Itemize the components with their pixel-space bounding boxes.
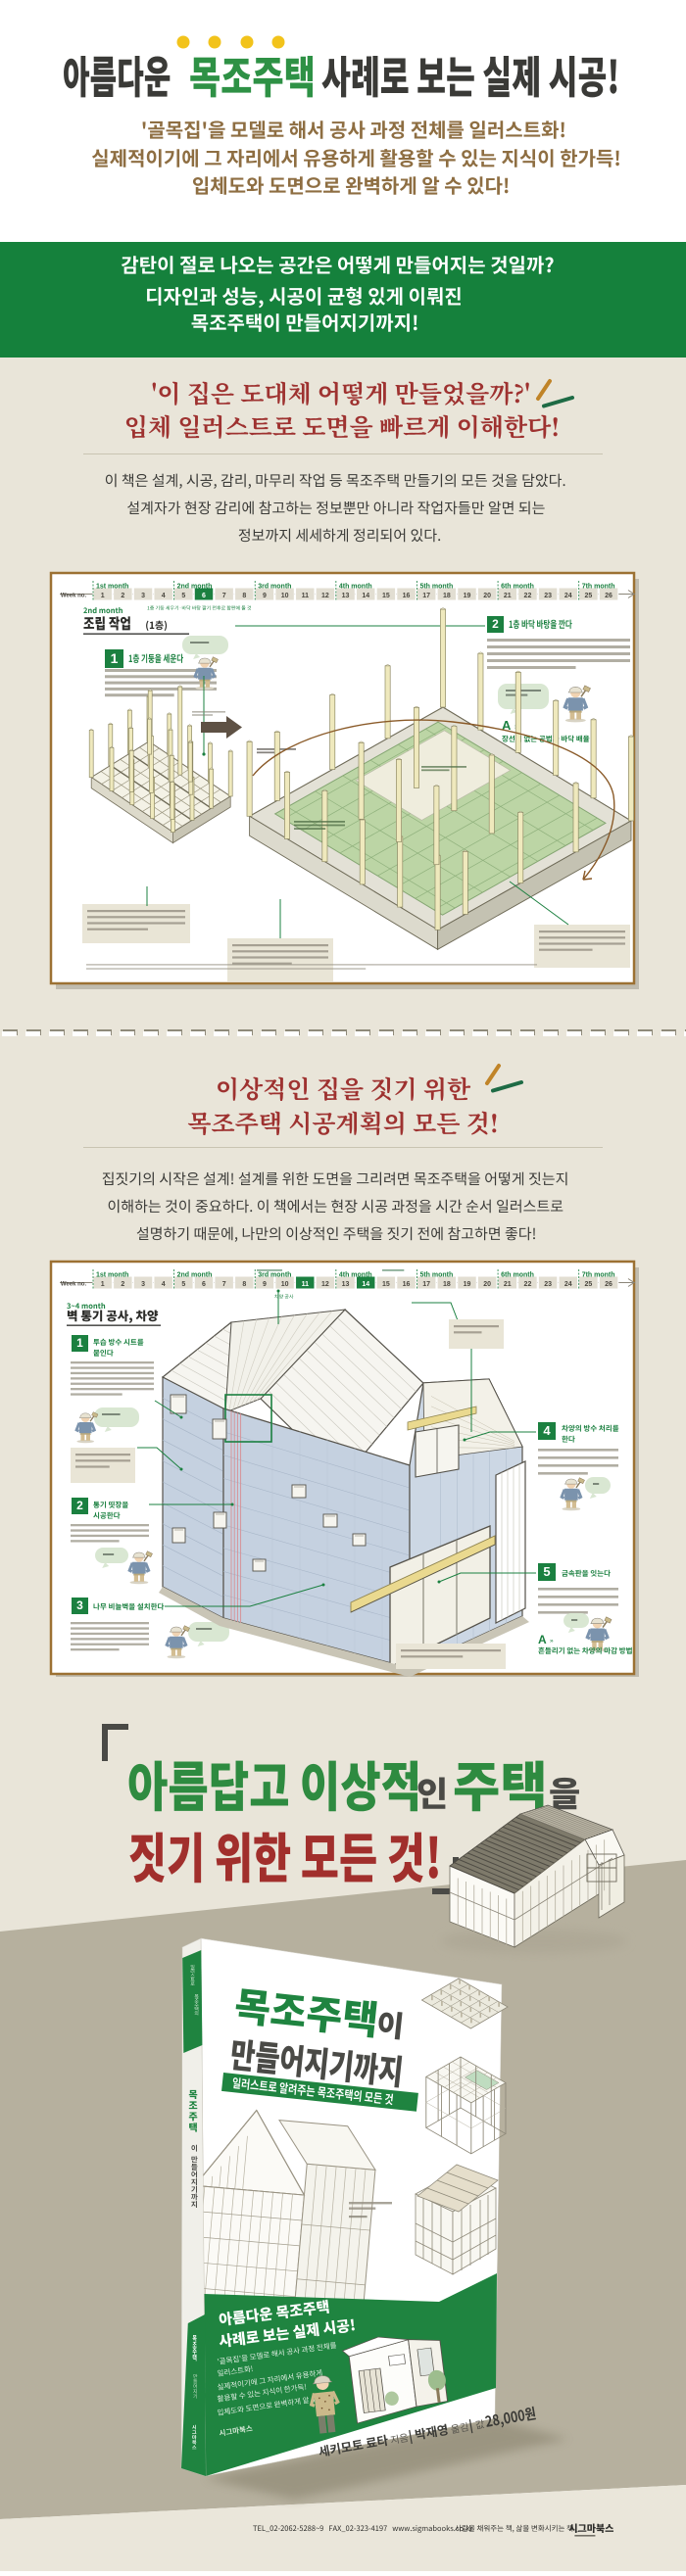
svg-text:1: 1 <box>76 1336 83 1350</box>
svg-text:2nd month: 2nd month <box>177 584 213 591</box>
svg-text:2nd month: 2nd month <box>177 1272 213 1279</box>
svg-text:3rd month: 3rd month <box>258 584 291 591</box>
svg-text:14: 14 <box>362 1281 369 1288</box>
svg-text:Week no.: Week no. <box>61 594 87 599</box>
svg-text:17: 17 <box>422 1281 430 1288</box>
svg-text:11: 11 <box>302 1281 310 1288</box>
svg-text:21: 21 <box>504 593 512 599</box>
svg-text:20: 20 <box>483 593 491 599</box>
svg-text:7: 7 <box>222 593 226 599</box>
svg-text:20: 20 <box>483 1281 491 1288</box>
svg-text:15: 15 <box>382 593 390 599</box>
svg-text:6: 6 <box>202 1281 206 1288</box>
svg-text:13: 13 <box>342 1281 350 1288</box>
svg-text:18: 18 <box>443 593 451 599</box>
svg-text:26: 26 <box>605 593 612 599</box>
svg-text:5th month: 5th month <box>419 1272 453 1279</box>
svg-text:1st month: 1st month <box>96 1272 128 1279</box>
svg-text:17: 17 <box>422 593 430 599</box>
svg-text:7th month: 7th month <box>582 1272 615 1279</box>
svg-text:1: 1 <box>101 1281 105 1288</box>
svg-text:1: 1 <box>111 650 119 666</box>
svg-text:16: 16 <box>403 593 411 599</box>
svg-text:3: 3 <box>141 593 145 599</box>
svg-text:22: 22 <box>524 1281 532 1288</box>
svg-text:10: 10 <box>281 1281 289 1288</box>
svg-text:14: 14 <box>362 593 369 599</box>
svg-text:16: 16 <box>403 1281 411 1288</box>
svg-text:25: 25 <box>585 1281 593 1288</box>
svg-text:11: 11 <box>302 593 310 599</box>
svg-text:8: 8 <box>242 593 246 599</box>
svg-text:26: 26 <box>605 1281 612 1288</box>
svg-text:10: 10 <box>281 593 289 599</box>
svg-text:5th month: 5th month <box>419 584 453 591</box>
svg-text:8: 8 <box>242 1281 246 1288</box>
svg-text:21: 21 <box>504 1281 512 1288</box>
svg-text:Week no.: Week no. <box>61 1282 87 1288</box>
svg-text:15: 15 <box>382 1281 390 1288</box>
svg-text:18: 18 <box>443 1281 451 1288</box>
svg-text:6th month: 6th month <box>501 1272 534 1279</box>
svg-text:3rd month: 3rd month <box>258 1272 291 1279</box>
svg-text:22: 22 <box>524 593 532 599</box>
svg-text:25: 25 <box>585 593 593 599</box>
svg-text:5: 5 <box>181 593 185 599</box>
svg-text:13: 13 <box>342 593 350 599</box>
svg-text:3: 3 <box>141 1281 145 1288</box>
svg-text:7: 7 <box>222 1281 226 1288</box>
svg-text:24: 24 <box>564 1281 572 1288</box>
svg-text:»: » <box>550 1638 554 1645</box>
svg-text:3: 3 <box>76 1598 83 1612</box>
svg-text:5: 5 <box>543 1564 550 1579</box>
svg-text:24: 24 <box>564 593 572 599</box>
svg-text:12: 12 <box>321 593 329 599</box>
svg-text:4th month: 4th month <box>339 1272 372 1279</box>
svg-text:A: A <box>538 1633 547 1646</box>
svg-text:2: 2 <box>76 1499 83 1512</box>
svg-text:9: 9 <box>263 1281 267 1288</box>
svg-text:23: 23 <box>544 1281 552 1288</box>
svg-text:2: 2 <box>121 1281 124 1288</box>
svg-text:4: 4 <box>162 1281 166 1288</box>
svg-text:2: 2 <box>492 617 499 631</box>
svg-text:19: 19 <box>464 1281 471 1288</box>
svg-text:4: 4 <box>543 1423 551 1438</box>
svg-text:5: 5 <box>181 1281 185 1288</box>
svg-text:4: 4 <box>162 593 166 599</box>
svg-text:2: 2 <box>121 593 124 599</box>
svg-text:1: 1 <box>101 593 105 599</box>
svg-text:23: 23 <box>544 593 552 599</box>
svg-text:4th month: 4th month <box>339 584 372 591</box>
svg-text:6th month: 6th month <box>501 584 534 591</box>
svg-text:7th month: 7th month <box>582 584 615 591</box>
svg-text:19: 19 <box>464 593 471 599</box>
svg-text:12: 12 <box>321 1281 329 1288</box>
svg-text:1st month: 1st month <box>96 584 128 591</box>
svg-text:6: 6 <box>202 593 206 599</box>
svg-text:9: 9 <box>263 593 267 599</box>
